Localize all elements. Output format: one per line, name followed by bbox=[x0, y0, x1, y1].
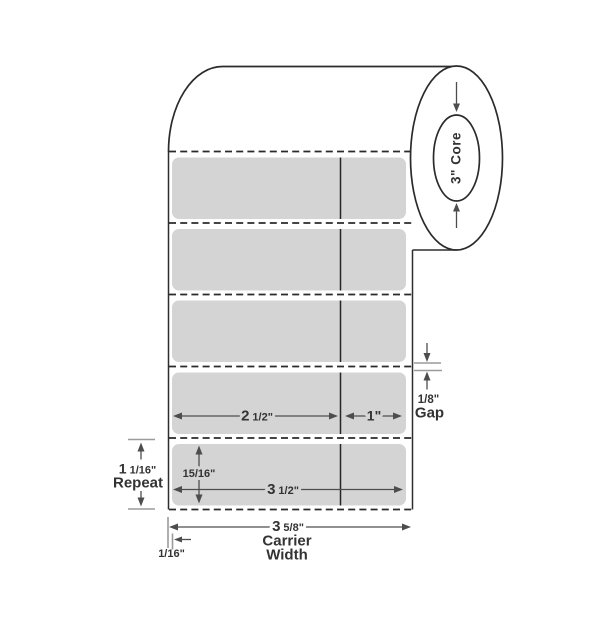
repeat-word-label: Repeat bbox=[113, 475, 163, 492]
arrowhead bbox=[424, 372, 431, 381]
carrier-width-word2-label: Width bbox=[266, 547, 308, 564]
gap-word-label: Gap bbox=[415, 405, 444, 422]
label-row bbox=[172, 373, 406, 435]
label-row bbox=[172, 229, 406, 291]
dim-liner-margin: 1/16" bbox=[158, 534, 191, 561]
core-label: 3" Core bbox=[449, 132, 464, 184]
label-rows bbox=[172, 158, 406, 506]
dimension-whole: 3 bbox=[267, 481, 275, 498]
label-row bbox=[172, 158, 406, 220]
label-rect bbox=[172, 301, 406, 363]
dimension-whole: 2 bbox=[241, 408, 249, 425]
dimension-fraction: 1/2" bbox=[252, 412, 273, 424]
dim-gap: 1/8" Gap bbox=[414, 343, 444, 422]
arrowhead bbox=[138, 443, 145, 452]
liner-margin-label: 1/16" bbox=[158, 548, 185, 560]
right-section-width-label: 1" bbox=[367, 408, 381, 424]
label-height-label: 15/16" bbox=[183, 468, 216, 480]
arrowhead bbox=[402, 524, 411, 531]
label-rect bbox=[172, 373, 406, 435]
arrowhead bbox=[424, 353, 431, 362]
dimension-fraction: 1/2" bbox=[278, 485, 299, 497]
arrowhead bbox=[169, 524, 178, 531]
diagram-canvas: 3" Core 21/2" 1" 1/8" Gap 15/16" 31/ bbox=[0, 0, 614, 628]
dim-carrier-width: 35/8" Carrier Width bbox=[168, 517, 411, 564]
label-rect bbox=[172, 158, 406, 220]
label-rect bbox=[172, 229, 406, 291]
arrowhead bbox=[174, 537, 182, 543]
label-roll-diagram: 3" Core 21/2" 1" 1/8" Gap 15/16" 31/ bbox=[0, 0, 614, 628]
label-row bbox=[172, 301, 406, 363]
dim-repeat: 11/16" Repeat bbox=[113, 440, 163, 510]
arrowhead bbox=[138, 498, 145, 507]
